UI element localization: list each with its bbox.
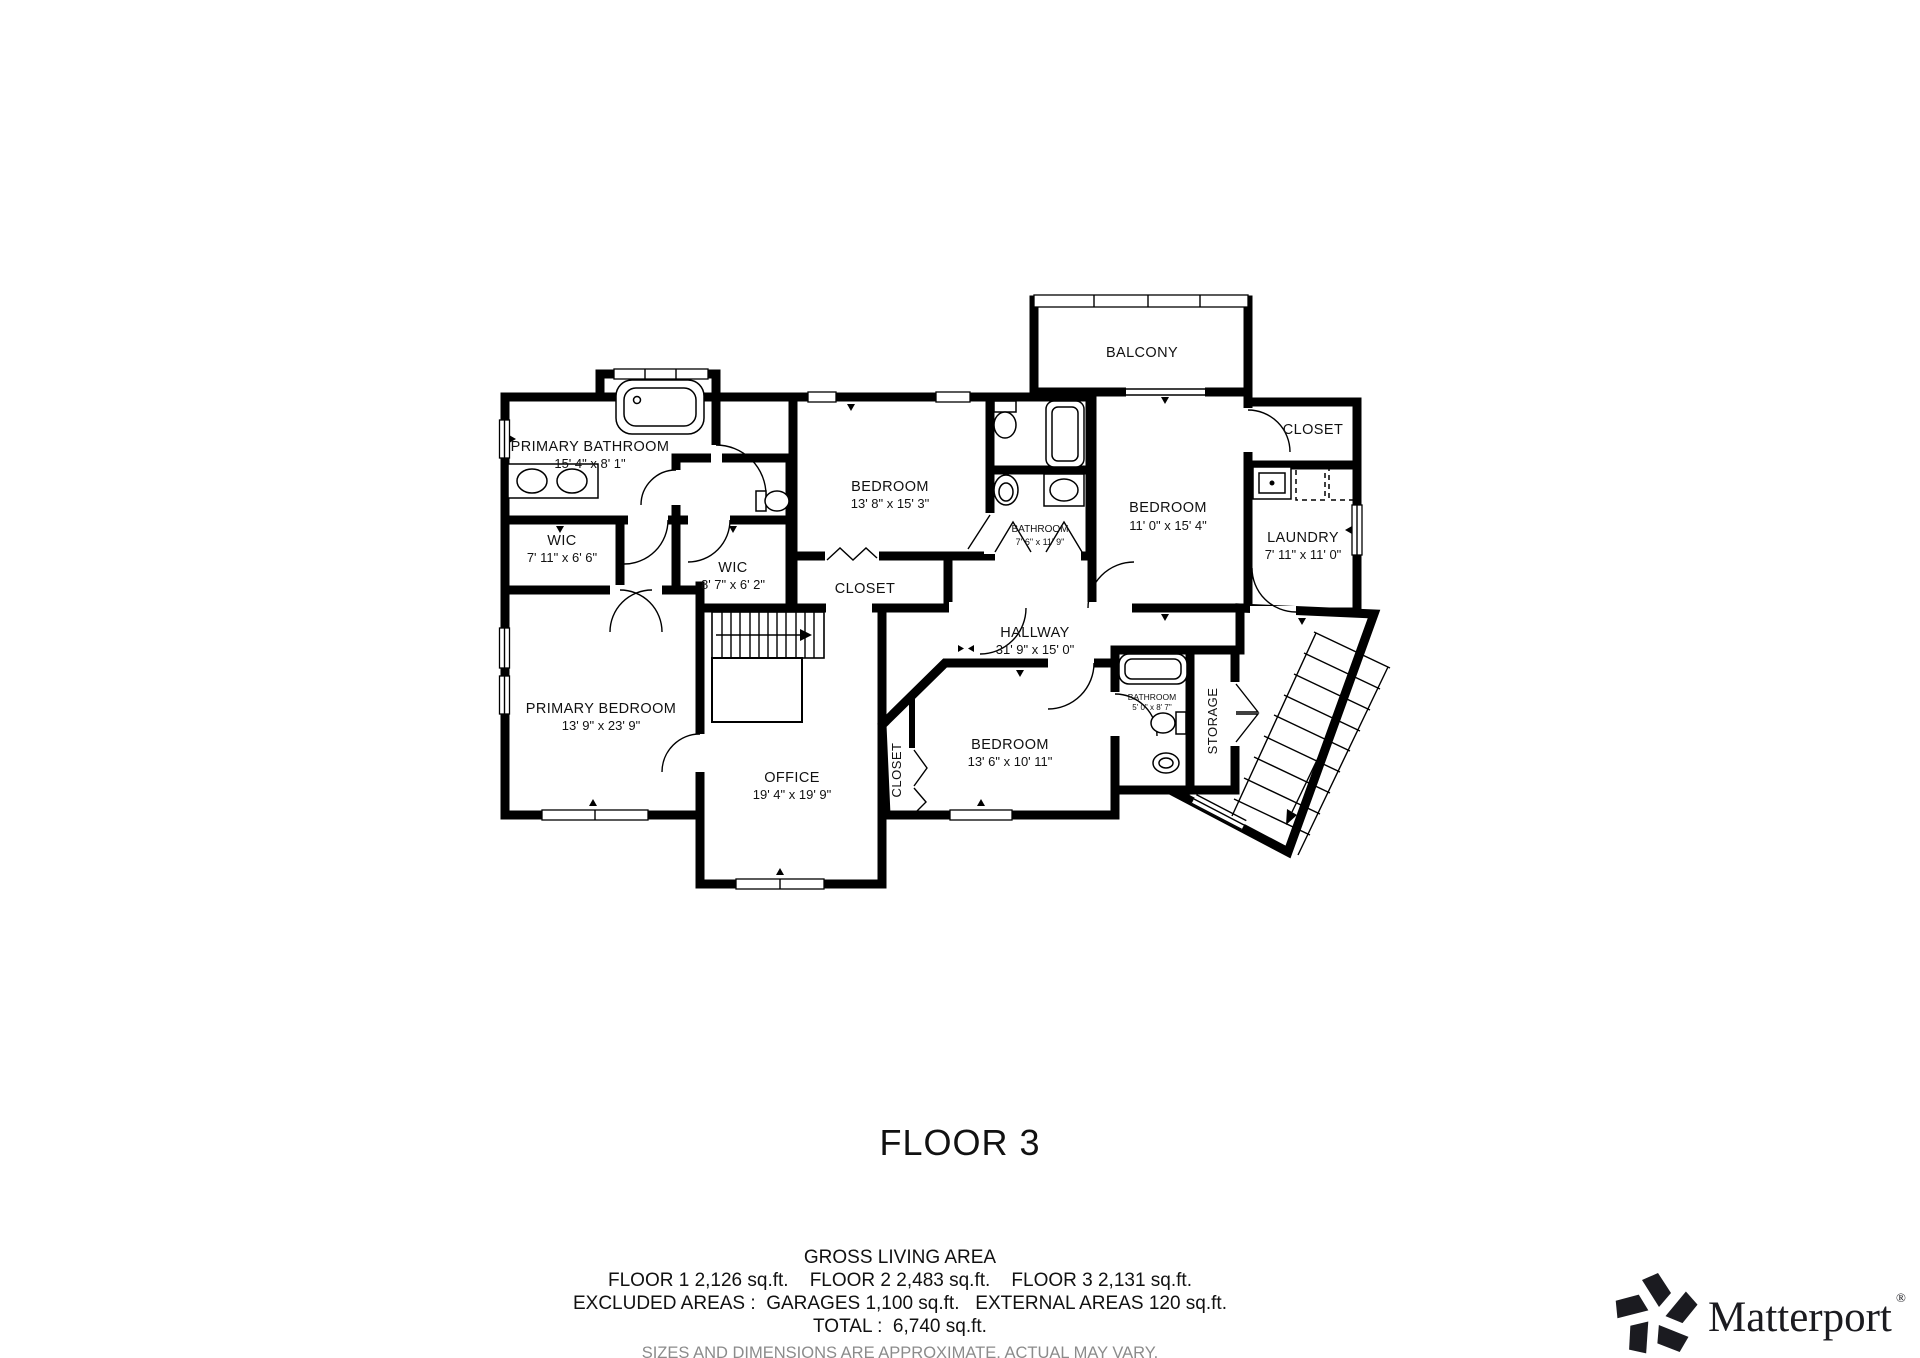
disclaimer-text: SIZES AND DIMENSIONS ARE APPROXIMATE, AC… <box>0 1342 1800 1358</box>
room-dims-wic-b: 8' 7" x 6' 2" <box>701 577 765 592</box>
room-label-office: OFFICE <box>764 770 820 786</box>
room-label-bedroom-lower: BEDROOM <box>971 737 1049 753</box>
room-label-wic-b: WIC <box>718 560 747 576</box>
room-label-balcony: BALCONY <box>1106 345 1178 361</box>
room-dims-bedroom-top: 13' 8" x 15' 3" <box>851 496 930 511</box>
room-label-closet-lower: CLOSET <box>889 742 904 797</box>
room-label-wic-a: WIC <box>547 533 576 549</box>
matterport-logo-text: Matterport <box>1708 1294 1892 1341</box>
room-label-laundry: LAUNDRY <box>1267 530 1339 546</box>
floor-plan-page: PRIMARY BATHROOM 15' 4" x 8' 1" WIC 7' 1… <box>0 0 1920 1358</box>
room-label-primary-bathroom: PRIMARY BATHROOM <box>511 439 670 455</box>
room-dims-bedroom-lower: 13' 6" x 10' 11" <box>968 754 1053 769</box>
room-label-storage: STORAGE <box>1205 688 1220 755</box>
room-dims-primary-bedroom: 13' 9" x 23' 9" <box>562 718 641 733</box>
room-dims-bedroom-right: 11' 0" x 15' 4" <box>1129 518 1207 533</box>
room-dims-primary-bathroom: 15' 4" x 8' 1" <box>554 456 626 471</box>
room-dims-laundry: 7' 11" x 11' 0" <box>1265 547 1342 562</box>
room-dims-bathroom-top: 7' 6" x 11' 9" <box>1016 537 1065 547</box>
excluded-areas-line: EXCLUDED AREAS : GARAGES 1,100 sq.ft. EX… <box>0 1292 1800 1315</box>
floor-title: FLOOR 3 <box>0 1122 1920 1164</box>
room-label-closet-mid: CLOSET <box>835 581 895 597</box>
floor-areas-line: FLOOR 1 2,126 sq.ft. FLOOR 2 2,483 sq.ft… <box>0 1269 1800 1292</box>
room-label-bathroom-lower: BATHROOM <box>1128 692 1176 702</box>
matterport-pinwheel-icon <box>1612 1273 1702 1358</box>
room-dims-hallway: 31' 9" x 15' 0" <box>996 642 1075 657</box>
room-label-bedroom-top: BEDROOM <box>851 479 929 495</box>
room-dims-bathroom-lower: 5' 0" x 8' 7" <box>1132 703 1172 712</box>
room-label-closet-right: CLOSET <box>1283 422 1343 438</box>
room-label-hallway: HALLWAY <box>1000 625 1069 641</box>
room-label-bathroom-top: BATHROOM <box>1011 524 1068 535</box>
room-label-primary-bedroom: PRIMARY BEDROOM <box>526 701 677 717</box>
total-area-line: TOTAL : 6,740 sq.ft. <box>0 1315 1800 1338</box>
area-summary: GROSS LIVING AREA FLOOR 1 2,126 sq.ft. F… <box>0 1246 1800 1358</box>
room-dims-wic-a: 7' 11" x 6' 6" <box>527 550 598 565</box>
room-label-bedroom-right: BEDROOM <box>1129 500 1207 516</box>
matterport-logo: Matterport ® <box>1612 1272 1912 1358</box>
room-dims-office: 19' 4" x 19' 9" <box>753 787 832 802</box>
gross-living-area-title: GROSS LIVING AREA <box>0 1246 1800 1269</box>
registered-trademark-symbol: ® <box>1896 1290 1906 1305</box>
